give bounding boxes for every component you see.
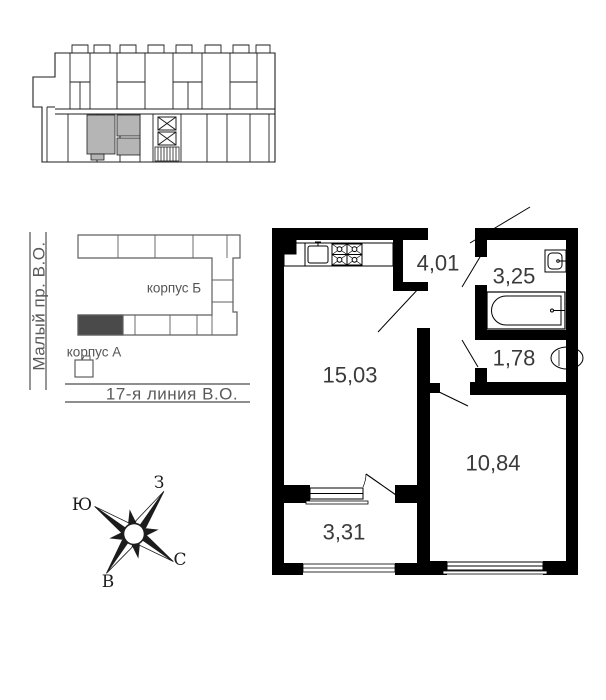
highlighted-section [78, 315, 123, 335]
leader-bathroom-door [462, 257, 480, 287]
bath-sink-icon [545, 250, 566, 272]
balcony-row [72, 45, 270, 53]
highlighted-apartment [87, 115, 140, 160]
room-label-bedroom: 10,84 [465, 451, 520, 476]
site-plan: Малый пр. В.О. корпус Б корпус А 17-я ли… [22, 222, 262, 414]
compass-label-south: Ю [72, 495, 92, 515]
leader-living-door [378, 287, 420, 332]
stairs-icon [155, 147, 179, 161]
stove-icon [332, 244, 362, 265]
bedroom-window [443, 562, 547, 574]
leader-toilet-door [462, 340, 478, 367]
upper-units-partitions [70, 53, 257, 109]
compass-rose: З Ю С В [58, 463, 208, 608]
compass-label-west: З [154, 473, 165, 493]
bathtub-icon [487, 292, 565, 329]
elevator-icon [158, 117, 176, 145]
room-label-toilet: 1,78 [493, 346, 536, 371]
floor-overview-plan [28, 28, 284, 178]
building-outline [33, 53, 275, 162]
room-label-bathroom: 3,25 [493, 264, 536, 289]
street-label-horizontal: 17-я линия В.О. [106, 385, 238, 404]
building-a-label: корпус А [67, 345, 122, 360]
leader-bedroom-door [435, 390, 468, 406]
core [155, 117, 179, 161]
room-label-hallway: 4,01 [417, 251, 460, 276]
apartment-plan: 4,01 3,25 1,78 15,03 10,84 3,31 [268, 200, 588, 582]
floorplan-page: Малый пр. В.О. корпус Б корпус А 17-я ли… [0, 0, 606, 700]
street-left: Малый пр. В.О. [30, 232, 49, 390]
balcony-glazing [303, 564, 395, 572]
compass-label-north: С [173, 550, 186, 570]
building-b-label: корпус Б [147, 281, 201, 296]
room-label-balcony: 3,31 [323, 520, 366, 545]
street-label-vertical: Малый пр. В.О. [30, 241, 49, 370]
kitchen-counter [284, 240, 393, 266]
balcony-door-swing [363, 474, 396, 495]
corridor-lines [55, 109, 275, 114]
room-label-living-kitchen: 15,03 [322, 363, 377, 388]
street-bottom: 17-я линия В.О. [65, 384, 250, 404]
vent-shaft [284, 240, 296, 254]
living-balcony-window [306, 488, 368, 504]
compass-label-east: В [102, 572, 115, 592]
